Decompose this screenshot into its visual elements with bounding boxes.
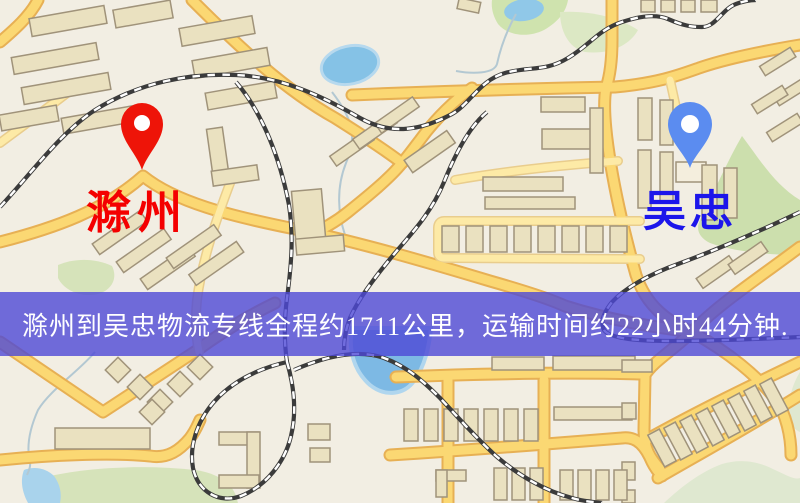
route-info-banner: 滁州到吴忠物流专线全程约1711公里，运输时间约22小时44分钟. bbox=[0, 292, 800, 356]
map-screenshot: 滁州 吴忠 滁州到吴忠物流专线全程约1711公里，运输时间约22小时44分钟. bbox=[0, 0, 800, 503]
map-canvas bbox=[0, 0, 800, 503]
origin-city-label: 滁州 bbox=[86, 176, 188, 241]
route-info-text: 滁州到吴忠物流专线全程约1711公里，运输时间约22小时44分钟. bbox=[0, 306, 789, 343]
destination-city-label: 吴忠 bbox=[643, 177, 737, 239]
